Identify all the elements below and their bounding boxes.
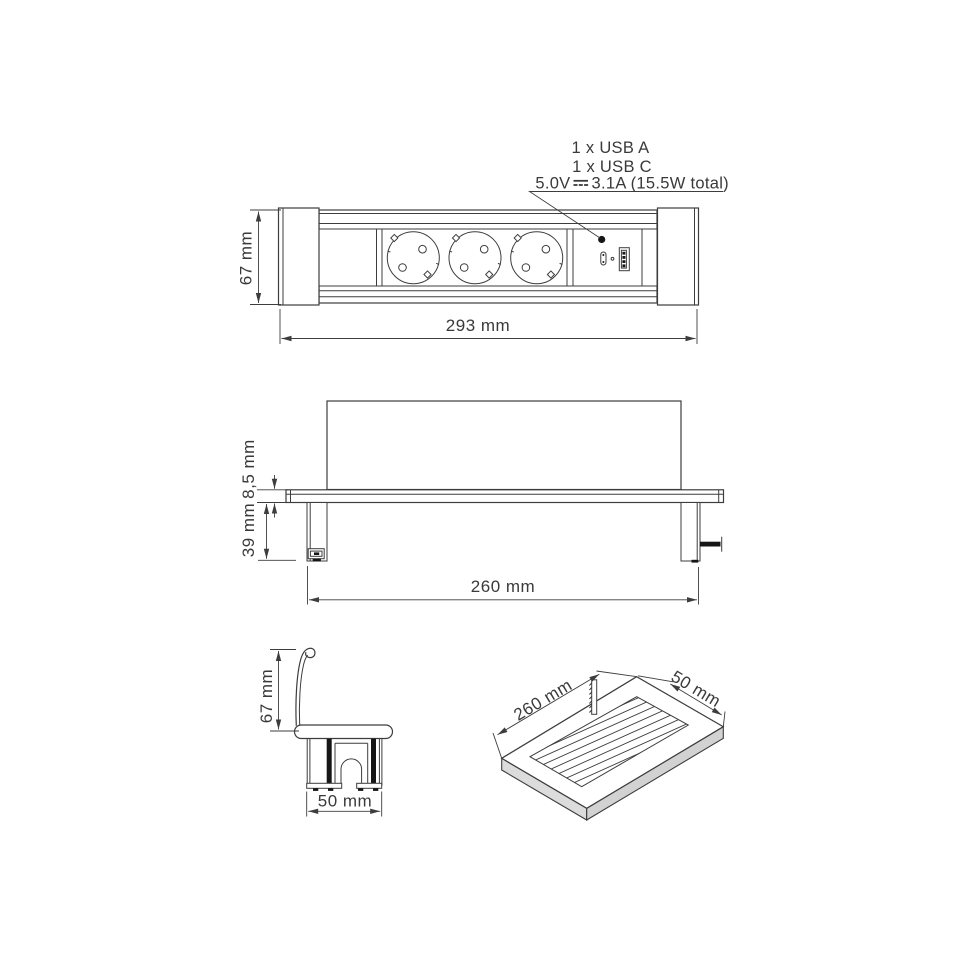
section-body: [327, 401, 681, 490]
profile-flange: [295, 725, 393, 739]
end-cap-left: [279, 208, 320, 305]
front-width-dimension: 293 mm: [280, 309, 697, 344]
clamp-foot: [313, 559, 321, 562]
front-view: 1 x USB A 1 x USB C 5.0V 3.1A (15.5W tot…: [237, 139, 729, 344]
front-height-label: 67 mm: [237, 231, 256, 285]
leg-depth-label: 39 mm: [239, 503, 258, 557]
profile-view: 67 mm 50 mm: [257, 648, 393, 816]
led-indicator: [611, 257, 614, 260]
clamp-bar-right: [371, 739, 376, 784]
profile-housing: [307, 739, 382, 791]
profile-height-label: 67 mm: [257, 669, 276, 723]
drawing-canvas: 1 x USB A 1 x USB C 5.0V 3.1A (15.5W tot…: [0, 0, 962, 962]
usb-a-port-icon: [619, 248, 629, 271]
cutout-length-label: 260 mm: [510, 675, 575, 724]
schuko-socket-2: [449, 232, 501, 284]
profile-width-dimension: 50 mm: [307, 792, 382, 817]
technical-drawing-page: 1 x USB A 1 x USB C 5.0V 3.1A (15.5W tot…: [0, 0, 962, 962]
left-leg: [307, 503, 327, 562]
right-leg: [681, 503, 700, 563]
usb-power-suffix: 3.1A (15.5W total): [592, 175, 729, 193]
profile-width-label: 50 mm: [318, 792, 372, 811]
front-width-label: 293 mm: [446, 316, 510, 335]
power-cord: [700, 537, 722, 552]
schuko-socket-3: [511, 232, 563, 284]
profile-height-dimension: 67 mm: [257, 650, 299, 732]
lid-profile-inner: [299, 655, 307, 726]
usb-annotation-line-1: 1 x USB A: [572, 139, 650, 157]
section-width-dimension: 260 mm: [308, 566, 699, 605]
section-view: 8,5 mm 39 mm 260 mm: [239, 401, 724, 605]
dc-symbol-icon: [574, 181, 589, 185]
front-height-dimension: 67 mm: [237, 210, 282, 305]
usb-c-port-icon: [601, 252, 606, 265]
leg-depth-dimension: 39 mm: [239, 503, 296, 561]
schuko-socket-1: [387, 232, 439, 284]
section-width-label: 260 mm: [471, 577, 535, 596]
usb-power-prefix: 5.0V: [535, 175, 570, 193]
cable-arch: [341, 759, 362, 783]
cutout-iso-view: 260 mm 50 mm: [493, 666, 725, 828]
clamp-bar-left: [327, 739, 332, 784]
flange-thickness-label: 8,5 mm: [239, 439, 258, 499]
usb-annotation-line-2: 1 x USB C: [572, 158, 652, 176]
desk-flange: [286, 490, 724, 503]
right-foot: [692, 560, 699, 563]
end-cap-right: [658, 208, 699, 305]
